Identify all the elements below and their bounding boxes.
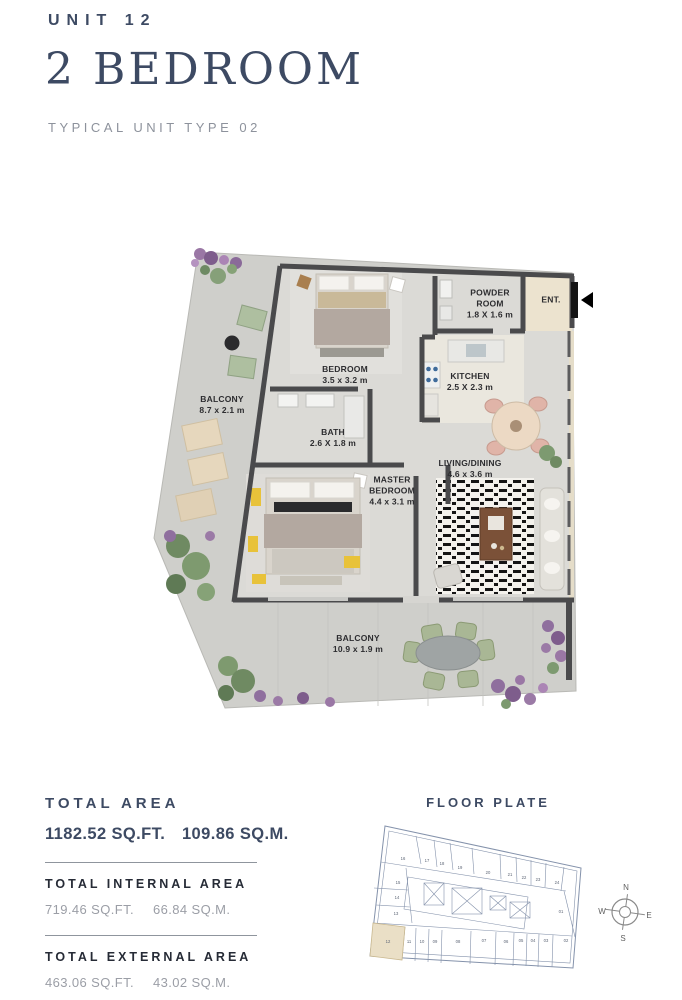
svg-text:24: 24 xyxy=(555,880,560,885)
total-area-heading: TOTAL AREA xyxy=(45,795,315,812)
svg-text:03: 03 xyxy=(544,938,549,943)
floor-plan: BALCONY8.7 x 2.1 m BEDROOM3.5 x 3.2 m PO… xyxy=(148,236,598,711)
round-table xyxy=(225,336,240,351)
entrance xyxy=(571,282,593,318)
svg-text:13: 13 xyxy=(394,911,399,916)
svg-text:06: 06 xyxy=(504,939,509,944)
svg-text:20: 20 xyxy=(486,870,491,875)
svg-text:05: 05 xyxy=(519,938,524,943)
internal-area-heading: TOTAL INTERNAL AREA xyxy=(45,877,315,891)
svg-text:08: 08 xyxy=(456,939,461,944)
compass-east-label: E xyxy=(646,911,651,920)
svg-text:02: 02 xyxy=(564,938,569,943)
floor-plate: 16 17 18 19 20 21 22 23 24 15 14 13 12 1… xyxy=(368,820,608,980)
svg-text:04: 04 xyxy=(531,938,536,943)
room-label-kitchen: KITCHEN2.5 X 2.3 m xyxy=(430,371,510,393)
svg-text:16: 16 xyxy=(401,856,406,861)
compass-rose: N W E S xyxy=(596,880,656,946)
internal-area-sqft: 719.46 SQ.FT. xyxy=(45,902,149,917)
room-label-bath: BATH2.6 X 1.8 m xyxy=(293,427,373,449)
internal-area-sqm: 66.84 SQ.M. xyxy=(153,902,230,917)
svg-text:18: 18 xyxy=(440,861,445,866)
divider xyxy=(45,935,257,936)
external-area-heading: TOTAL EXTERNAL AREA xyxy=(45,950,315,964)
area-summary: TOTAL AREA 1182.52 SQ.FT. 109.86 SQ.M. T… xyxy=(45,795,315,990)
compass-south-label: S xyxy=(620,934,625,943)
svg-text:01: 01 xyxy=(559,909,564,914)
floor-plate-title: FLOOR PLATE xyxy=(368,795,608,810)
svg-text:19: 19 xyxy=(458,865,463,870)
coffee-table xyxy=(480,508,512,560)
internal-area-values: 719.46 SQ.FT. 66.84 SQ.M. xyxy=(45,902,315,917)
room-label-balcony-left: BALCONY8.7 x 2.1 m xyxy=(177,394,267,416)
room-label-balcony-bottom: BALCONY10.9 x 1.9 m xyxy=(313,633,403,655)
entrance-arrow-icon xyxy=(581,292,593,308)
compass-north-label: N xyxy=(623,883,629,892)
plate-unit-numbers: 16 17 18 19 20 21 22 23 24 15 14 13 12 1… xyxy=(386,856,569,944)
svg-text:12: 12 xyxy=(386,939,391,944)
unit-brochure-page: UNIT 12 2 BEDROOM TYPICAL UNIT TYPE 02 xyxy=(0,0,682,1000)
room-label-bedroom: BEDROOM3.5 x 3.2 m xyxy=(300,364,390,386)
svg-text:14: 14 xyxy=(395,895,400,900)
divider xyxy=(45,862,257,863)
svg-text:17: 17 xyxy=(425,858,430,863)
svg-text:23: 23 xyxy=(536,877,541,882)
total-area-values: 1182.52 SQ.FT. 109.86 SQ.M. xyxy=(45,825,315,844)
unit-number-label: UNIT 12 xyxy=(48,12,157,30)
external-area-sqm: 43.02 SQ.M. xyxy=(153,975,230,990)
floor-plate-drawing: 16 17 18 19 20 21 22 23 24 15 14 13 12 1… xyxy=(368,820,608,980)
page-title: 2 BEDROOM xyxy=(45,44,364,95)
compass-west-label: W xyxy=(598,907,606,916)
core-corridor xyxy=(404,877,528,929)
svg-text:10: 10 xyxy=(420,939,425,944)
master-bedroom-furniture xyxy=(248,473,367,585)
room-label-living-dining: LIVING/DINING4.6 x 3.6 m xyxy=(438,458,501,480)
external-area-values: 463.06 SQ.FT. 43.02 SQ.M. xyxy=(45,975,315,990)
room-label-powder-room: POWDER ROOM1.8 X 1.6 m xyxy=(461,287,519,320)
entrance-label: ENT. xyxy=(541,294,560,305)
total-area-sqft: 1182.52 SQ.FT. xyxy=(45,825,177,844)
svg-text:07: 07 xyxy=(482,938,487,943)
room-label-master-bedroom: MASTER BEDROOM4.4 x 3.1 m xyxy=(359,474,425,507)
entrance-door xyxy=(571,282,578,318)
svg-text:11: 11 xyxy=(407,939,412,944)
total-area-sqm: 109.86 SQ.M. xyxy=(182,825,289,843)
svg-text:21: 21 xyxy=(508,872,513,877)
svg-text:22: 22 xyxy=(522,875,527,880)
external-area-sqft: 463.06 SQ.FT. xyxy=(45,975,149,990)
svg-text:15: 15 xyxy=(396,880,401,885)
unit-type-subtitle: TYPICAL UNIT TYPE 02 xyxy=(48,120,261,135)
svg-text:09: 09 xyxy=(433,939,438,944)
